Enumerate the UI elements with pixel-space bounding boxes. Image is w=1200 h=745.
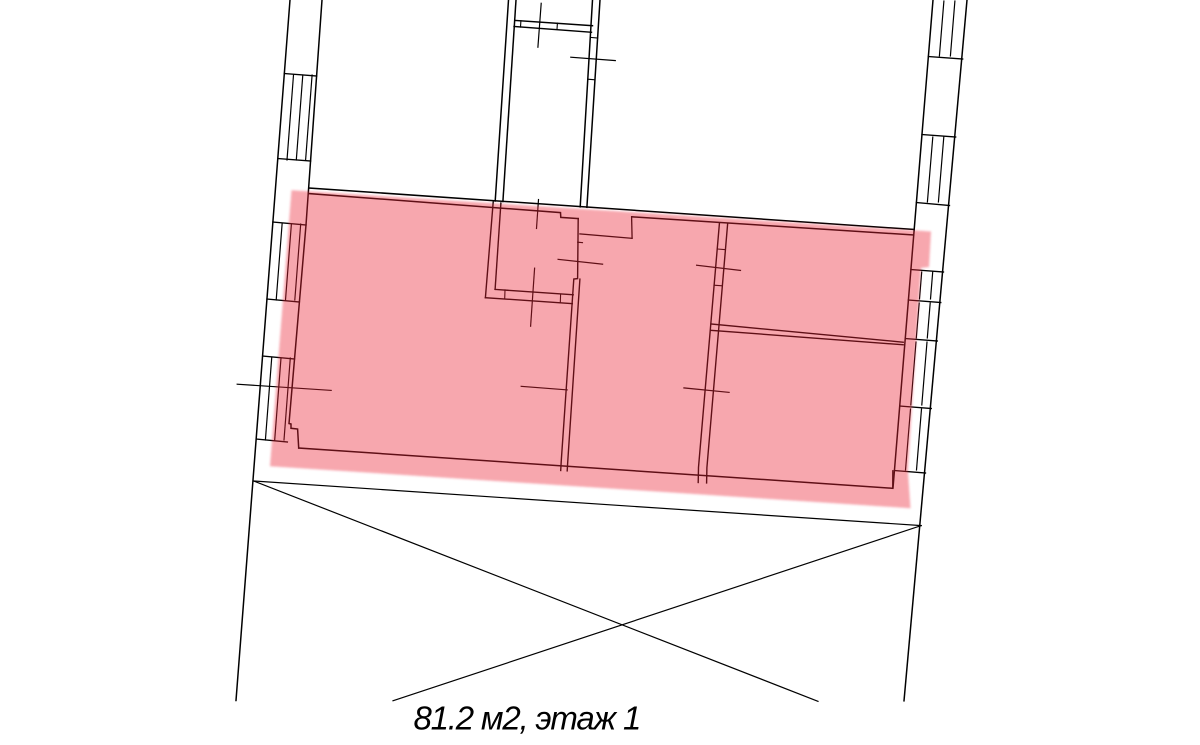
svg-text:81.2 м2, этаж 1: 81.2 м2, этаж 1: [414, 700, 641, 737]
